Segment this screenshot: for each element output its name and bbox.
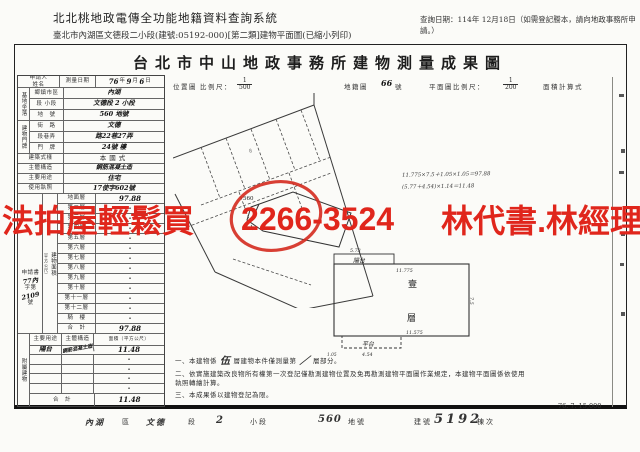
table-row: 段巷弄 路22巷27弄: [30, 132, 164, 143]
section-label: 段 小段: [30, 99, 64, 109]
license-label: 使用執照: [18, 184, 64, 193]
door-number-value: 24號 樓: [64, 143, 164, 153]
note-text: 一、本建物係: [175, 357, 217, 366]
parcel-dashed-line: [233, 259, 311, 285]
floor-name-char-1: 壹: [408, 278, 417, 290]
annex-total-row: 合 計 11.48: [30, 394, 164, 406]
note-text: 層部分。: [313, 357, 341, 366]
floor-area-value: ·: [96, 264, 164, 273]
applicant-name-label: 姓名: [32, 82, 44, 88]
footer-parcel-value: 560: [318, 414, 342, 425]
parcel-dashed-line: [276, 119, 295, 170]
survey-date-label: 測量日期: [60, 76, 96, 87]
annex-area-value: ·: [94, 355, 164, 364]
map-boundary-line: [173, 105, 314, 158]
table-row: 建築式樣 本國式: [18, 154, 164, 164]
area-calc-column-divider: [612, 77, 613, 407]
ink-smudge: [619, 94, 624, 97]
watermark-phone-number: 2266-3524: [241, 201, 394, 238]
survey-year: 76: [109, 78, 119, 86]
structure-label: 主體構造: [18, 164, 64, 173]
annex-structure-value: [62, 374, 94, 383]
table-row: 鄉鎮市區 內湖: [30, 88, 164, 99]
footer-unit-label: 棟次: [477, 417, 495, 427]
query-date-text: 查詢日期：114年 12月18日（如需登記謄本，請向地政事務所申請。）: [420, 14, 640, 36]
document-title: 台北市中山地政事務所建物測量成果圖: [110, 52, 530, 73]
table-row: 主體構造 鋼筋混凝土造: [18, 164, 164, 174]
parcel-dashed-line: [301, 110, 320, 161]
survey-month: 9: [126, 78, 131, 86]
footer-subsection-value: 2: [216, 415, 225, 426]
survey-date-value: 76 年 9 月 6 日: [96, 76, 164, 87]
annex-use-value: 陽台: [30, 346, 62, 354]
footer-district-value: 內湖: [85, 417, 105, 428]
annex-row: 陽台 鋼筋混凝土造 11.48: [30, 346, 164, 355]
handwritten-floor-no: ／: [297, 357, 314, 366]
floor-label: 第十一層: [58, 294, 96, 303]
structure-value: 鋼筋混凝土造: [64, 164, 164, 173]
parcel-label: 地 號: [30, 110, 64, 120]
cadastral-map-number-suffix: 號: [395, 81, 403, 91]
annex-use-value: [30, 365, 62, 374]
footer-building-number: 5192: [434, 412, 482, 427]
lane-alley-label: 段巷弄: [30, 132, 64, 142]
document-subtitle: 臺北市內湖區文德段二小段(建號:05192-000)[第二類]建物平面圖(已縮小…: [53, 29, 351, 41]
annex-use-header: 主要用途: [30, 334, 62, 345]
parcel-value: 560 地號: [64, 110, 164, 120]
annex-row: ·: [30, 355, 164, 365]
watermark-text-right: 林代書.林經理: [441, 196, 640, 242]
annex-area-header: 面積（平方公尺）: [94, 334, 164, 345]
scale-denominator: 500: [237, 84, 252, 91]
table-row: 地 號 560 地號: [30, 110, 164, 120]
platform-dimension: 4.54: [361, 352, 373, 358]
location-map-label: 位置圖: [173, 81, 197, 91]
table-row: 街 路 文德: [30, 121, 164, 132]
form-print-code: 76. 7. 15,000: [558, 402, 601, 410]
door-number-label: 門 牌: [30, 143, 64, 153]
platform-label: 平台: [362, 340, 375, 348]
annex-structure-value: [62, 355, 94, 364]
annex-row: ·: [30, 365, 164, 375]
receipt-stamp: 申請書 77內 字第 2109 號: [18, 270, 43, 307]
floor-plan-outline: [334, 264, 469, 336]
bottom-dimension: 11.575: [406, 330, 423, 336]
floor-area-value: ·: [96, 244, 164, 253]
annex-structure-value: [62, 384, 94, 393]
area-calc-handwriting: (5.77＋4.54)×1.14＝11.48: [402, 181, 475, 190]
table-row: 門 牌 24號 樓: [30, 143, 164, 153]
style-value: 本國式: [64, 154, 164, 163]
annex-group-label: 附屬建物: [18, 334, 30, 406]
area-calc-column-label: 面積計算式: [543, 81, 583, 91]
street-label: 街 路: [30, 121, 64, 131]
floor-area-value: ·: [96, 304, 164, 313]
note-2: 二、依實施建築改良物所有權第一次登記僅勘測建物位置及免再勘測建物平面圖作業規定，…: [175, 370, 527, 388]
annex-row: ·: [30, 374, 164, 384]
note-text: 層建物本件僅測量第: [234, 357, 297, 366]
ink-smudge: [621, 149, 625, 153]
total-label: 合 計: [58, 324, 96, 333]
survey-day: 6: [139, 78, 144, 86]
use-value: 住宅: [64, 174, 164, 183]
annex-section: 附屬建物 主要用途 主體構造 面積（平方公尺） 陽台 鋼筋混凝土造 11.48 …: [18, 334, 164, 406]
note-1: 一、本建物係 伍 層建物本件僅測量第 ／ 層部分。: [175, 357, 341, 366]
ink-smudge: [620, 263, 624, 266]
floor-plan: 5.73 陽台 11.775 壹 層 7.5 11.575 平台 4.54 1.…: [326, 246, 526, 358]
floor-label: 騎 樓: [58, 314, 96, 323]
table-row: 使用執照 17使字602號: [18, 184, 164, 194]
top-dimension: 11.775: [396, 268, 413, 274]
table-row: 段 小段 文德段 2 小段: [30, 99, 164, 110]
footer-parcel-label: 地號: [348, 417, 366, 427]
handwritten-floor-count: 伍: [217, 357, 234, 366]
day-label: 日: [145, 78, 151, 84]
annex-area-value: ·: [94, 365, 164, 374]
watermark-text-left: 法拍屋輕鬆買: [2, 196, 194, 242]
area-unit-text: （平方公尺）: [43, 250, 49, 277]
scale-label: 比例尺：: [200, 81, 232, 91]
floor-label: 第八層: [58, 264, 96, 273]
building-address-section: 建物門牌 街 路 文德 段巷弄 路22巷27弄 門 牌 24號 樓: [18, 121, 164, 154]
floor-label: 第七層: [58, 254, 96, 263]
site-location-section: 基地坐落 鄉鎮市區 內湖 段 小段 文德段 2 小段 地 號 560 地號: [18, 88, 164, 121]
floor-area-value: ·: [96, 254, 164, 263]
parcel-dashed-line: [251, 129, 270, 180]
annex-header-row: 主要用途 主體構造 面積（平方公尺）: [30, 334, 164, 346]
scanned-cadastral-query-page: { "app_header": { "title": "北北桃地政電傳全功能地籍…: [0, 0, 640, 452]
section-value: 文德段 2 小段: [64, 99, 164, 109]
survey-date-row: 申請人 姓名 測量日期 76 年 9 月 6 日: [18, 76, 164, 88]
balcony-label: 陽台: [353, 257, 366, 265]
floor-name-char-2: 層: [407, 313, 416, 324]
floor-label: 第九層: [58, 274, 96, 283]
parcel-dashed-line: [226, 138, 245, 189]
site-location-group-label: 基地坐落: [18, 88, 30, 120]
floor-label: 第六層: [58, 244, 96, 253]
footer-subsection-label: 小段: [250, 417, 268, 427]
district-label: 鄉鎮市區: [30, 88, 64, 98]
annex-total-value: 11.48: [95, 394, 164, 406]
annex-structure-value: [62, 365, 94, 374]
balcony-dimension: 5.73: [350, 248, 361, 254]
floor-label: 第十層: [58, 284, 96, 293]
use-label: 主要用途: [18, 174, 64, 183]
floor-area-value: ·: [96, 314, 164, 323]
annex-area-value: ·: [94, 384, 164, 393]
annex-row: ·: [30, 384, 164, 394]
system-title: 北北桃地政電傳全功能地籍資料查詢系統: [53, 10, 278, 26]
total-area-value: 97.88: [96, 324, 164, 333]
annex-total-label: 合 計: [30, 394, 95, 406]
table-row: 主要用途 住宅: [18, 174, 164, 184]
annex-use-value: [30, 384, 62, 393]
area-calc-handwriting: 11.775×7.5＋1.05×1.05＝97.88: [402, 169, 491, 179]
annex-area-value: 11.48: [94, 346, 164, 354]
building-address-group-label: 建物門牌: [18, 121, 30, 153]
footer-building-label: 建號: [414, 417, 432, 427]
watermark: 法拍屋輕鬆買 2266-3524 林代書.林經理: [0, 196, 640, 242]
floor-area-value: ·: [96, 284, 164, 293]
plan-scale-denominator: 200: [503, 84, 518, 91]
month-label: 月: [132, 78, 138, 84]
ink-smudge: [621, 312, 625, 316]
footer-section-value: 文德: [146, 417, 166, 428]
parcel-dashed-line: [201, 147, 220, 198]
footer-district-label: 區: [122, 417, 131, 427]
cadastral-map-number: 66: [381, 78, 392, 88]
lane-alley-value: 路22巷27弄: [64, 132, 164, 142]
year-label: 年: [119, 78, 125, 84]
note-3: 三、本成果係以建物登記為限。: [175, 391, 273, 400]
area-group-text: 建物面積: [49, 252, 57, 276]
annex-use-value: [30, 355, 62, 364]
plan-scale: 1 200: [503, 78, 518, 91]
footer-section-label: 段: [188, 417, 197, 427]
annex-use-value: [30, 374, 62, 383]
plan-scale-label: 平面圖比例尺：: [429, 81, 485, 91]
license-value: 17使字602號: [64, 184, 164, 193]
ink-smudge: [619, 171, 624, 174]
floor-label: 第十二層: [58, 304, 96, 313]
right-dimension: 7.5: [468, 297, 474, 305]
applicant-cell: 申請人 姓名: [18, 76, 60, 87]
floor-area-value: ·: [96, 274, 164, 283]
cadastral-map-label: 地籍圖: [344, 81, 368, 91]
district-value: 內湖: [64, 88, 164, 98]
location-map-scale: 1 500: [237, 78, 252, 91]
neighbor-parcel-mark: 8: [248, 148, 253, 155]
annex-area-value: ·: [94, 374, 164, 383]
floor-area-value: ·: [96, 294, 164, 303]
style-label: 建築式樣: [18, 154, 64, 163]
street-value: 文德: [64, 121, 164, 131]
